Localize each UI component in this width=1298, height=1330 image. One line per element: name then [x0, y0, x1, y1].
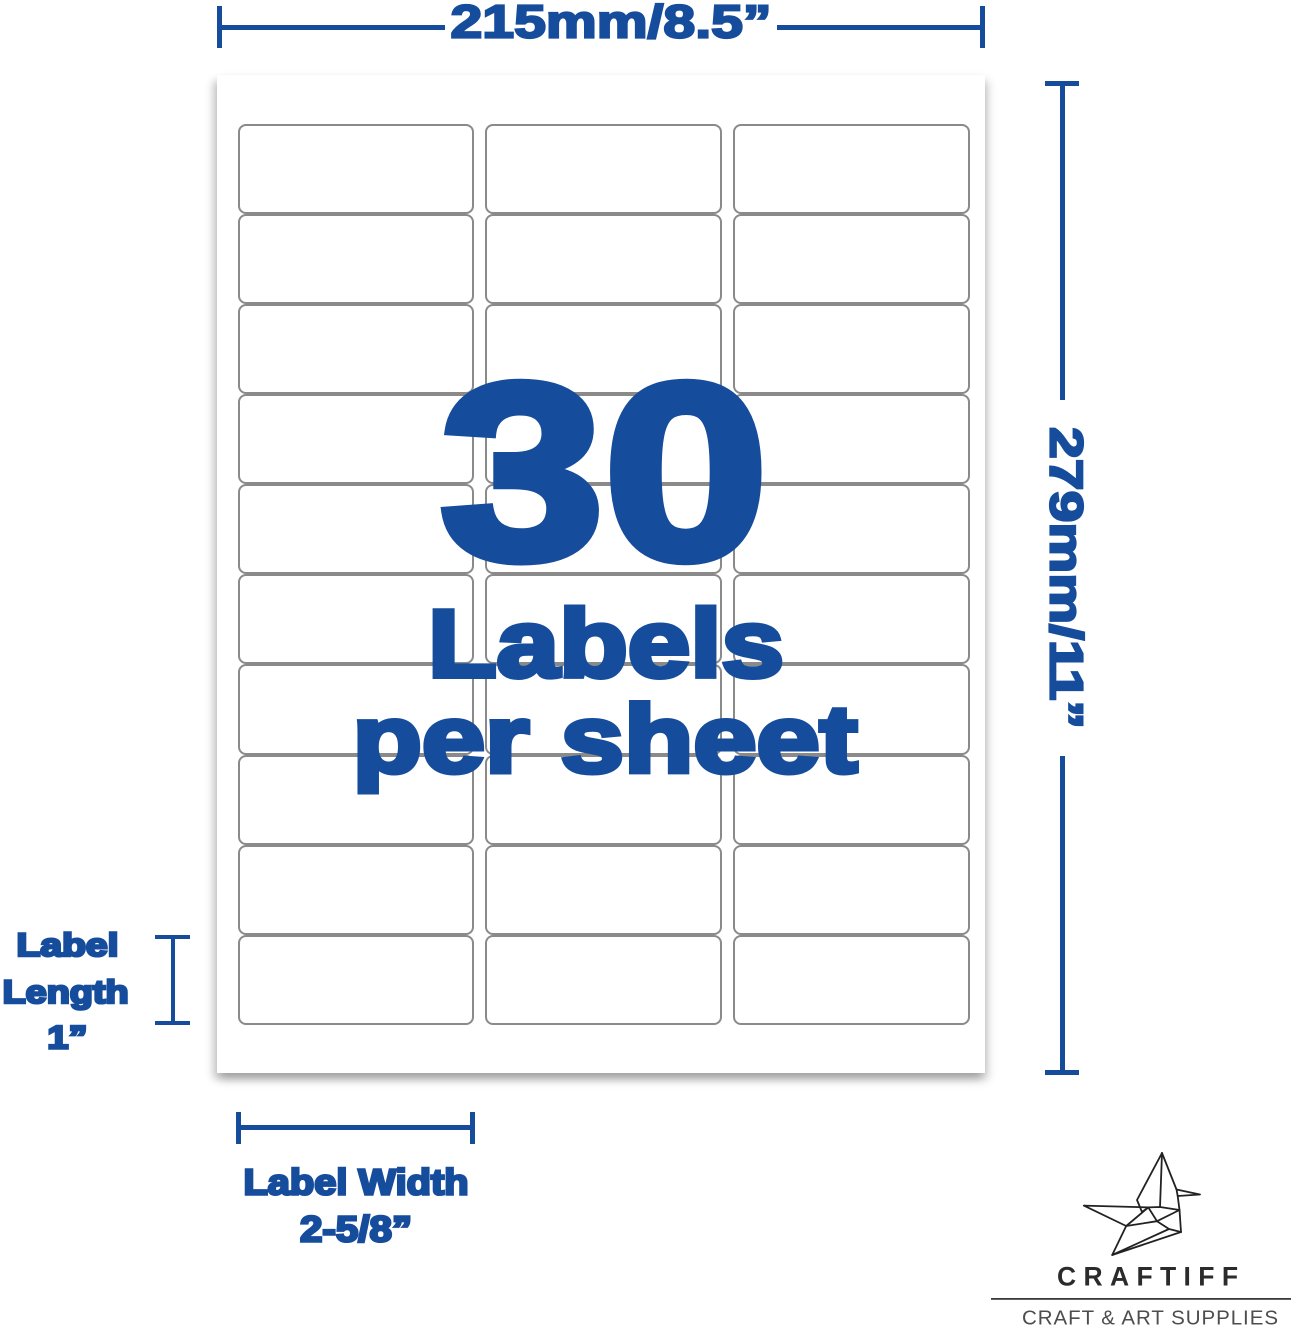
- svg-text:1”: 1”: [47, 1020, 87, 1056]
- svg-text:30: 30: [440, 332, 768, 611]
- svg-text:Labels: Labels: [428, 591, 784, 698]
- svg-text:Length: Length: [3, 974, 129, 1010]
- svg-text:215mm/8.5”: 215mm/8.5”: [451, 0, 772, 48]
- svg-text:CRAFTIFF: CRAFTIFF: [1057, 1262, 1238, 1292]
- svg-text:per sheet: per sheet: [353, 686, 858, 793]
- svg-text:Label: Label: [17, 927, 119, 963]
- svg-text:2-5/8”: 2-5/8”: [300, 1209, 412, 1250]
- svg-text:CRAFT & ART SUPPLIES: CRAFT & ART SUPPLIES: [1022, 1307, 1278, 1330]
- svg-text:Label Width: Label Width: [244, 1161, 469, 1202]
- svg-text:279mm/11”: 279mm/11”: [1041, 427, 1093, 729]
